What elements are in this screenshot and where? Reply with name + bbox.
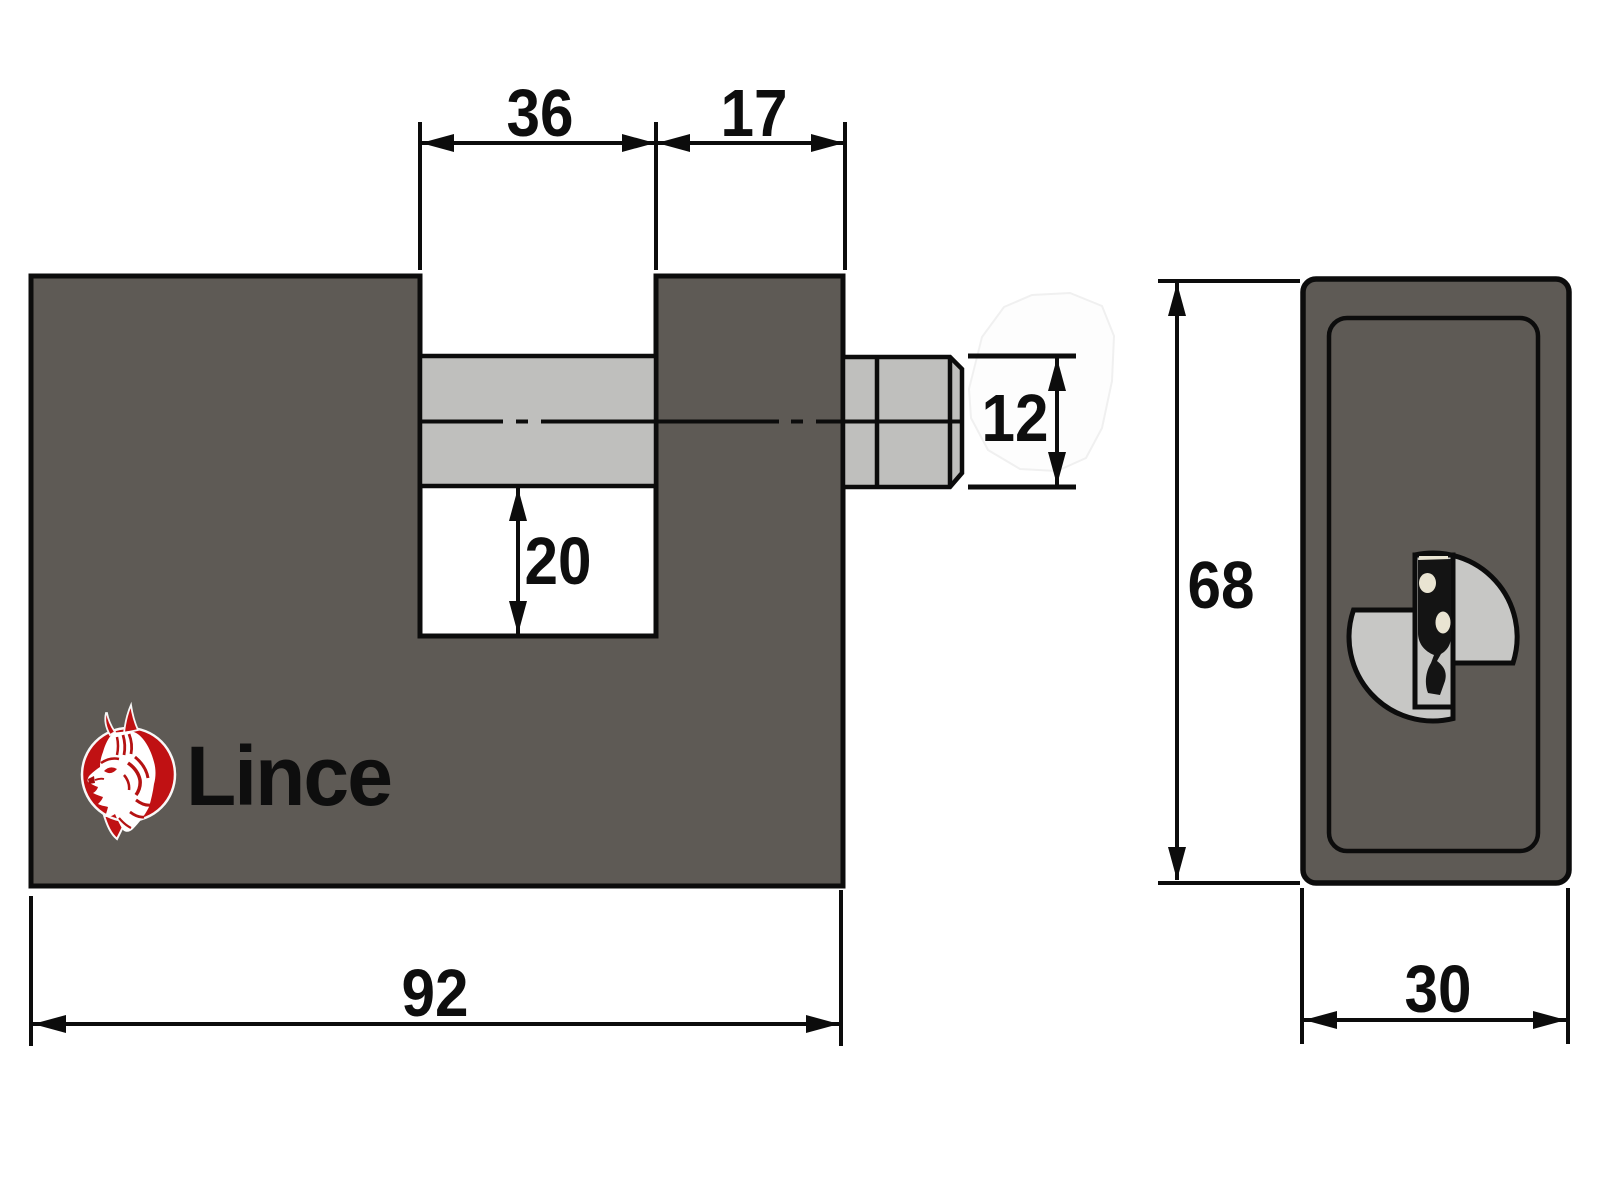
- svg-text:30: 30: [1405, 952, 1472, 1027]
- svg-text:92: 92: [402, 956, 469, 1031]
- svg-text:68: 68: [1188, 548, 1255, 623]
- svg-text:12: 12: [982, 381, 1049, 456]
- svg-text:17: 17: [721, 76, 788, 151]
- svg-text:36: 36: [507, 76, 574, 151]
- svg-text:Lince: Lince: [186, 729, 391, 823]
- svg-text:20: 20: [525, 524, 592, 599]
